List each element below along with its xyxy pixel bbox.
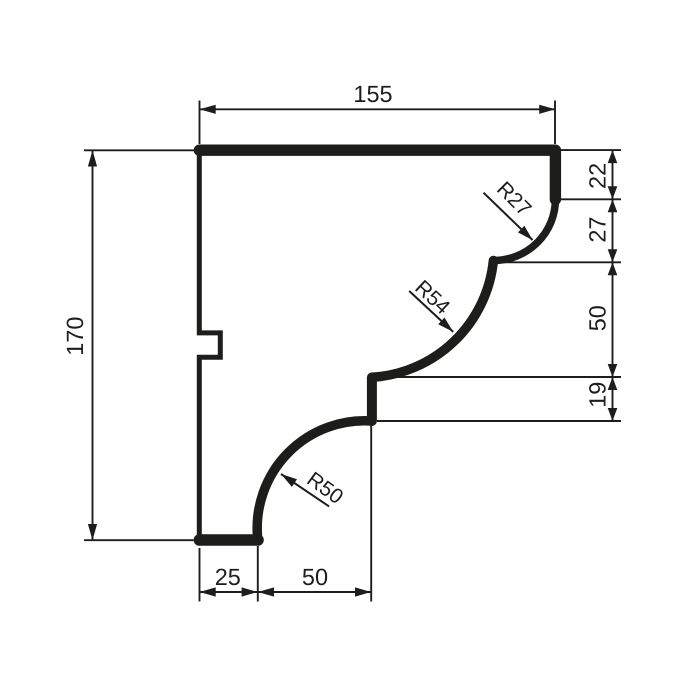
svg-text:25: 25: [215, 564, 241, 590]
svg-text:27: 27: [585, 217, 611, 243]
svg-text:155: 155: [353, 81, 392, 107]
svg-text:50: 50: [302, 564, 328, 590]
svg-text:50: 50: [585, 305, 611, 331]
svg-text:22: 22: [585, 163, 611, 189]
svg-text:170: 170: [62, 317, 88, 356]
svg-text:19: 19: [585, 382, 611, 408]
